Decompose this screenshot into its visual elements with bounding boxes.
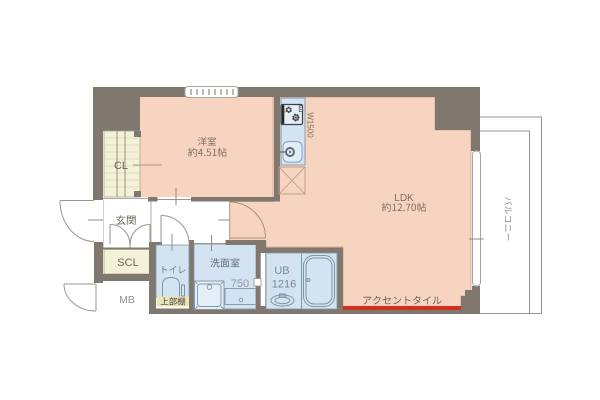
svg-text:CL: CL [114, 160, 128, 172]
svg-text:W1500: W1500 [306, 112, 315, 138]
svg-text:UB: UB [274, 265, 289, 277]
svg-text:SCL: SCL [117, 257, 138, 269]
svg-text:1216: 1216 [272, 279, 296, 291]
svg-text:LDK: LDK [394, 193, 414, 204]
svg-text:MB: MB [119, 294, 135, 306]
